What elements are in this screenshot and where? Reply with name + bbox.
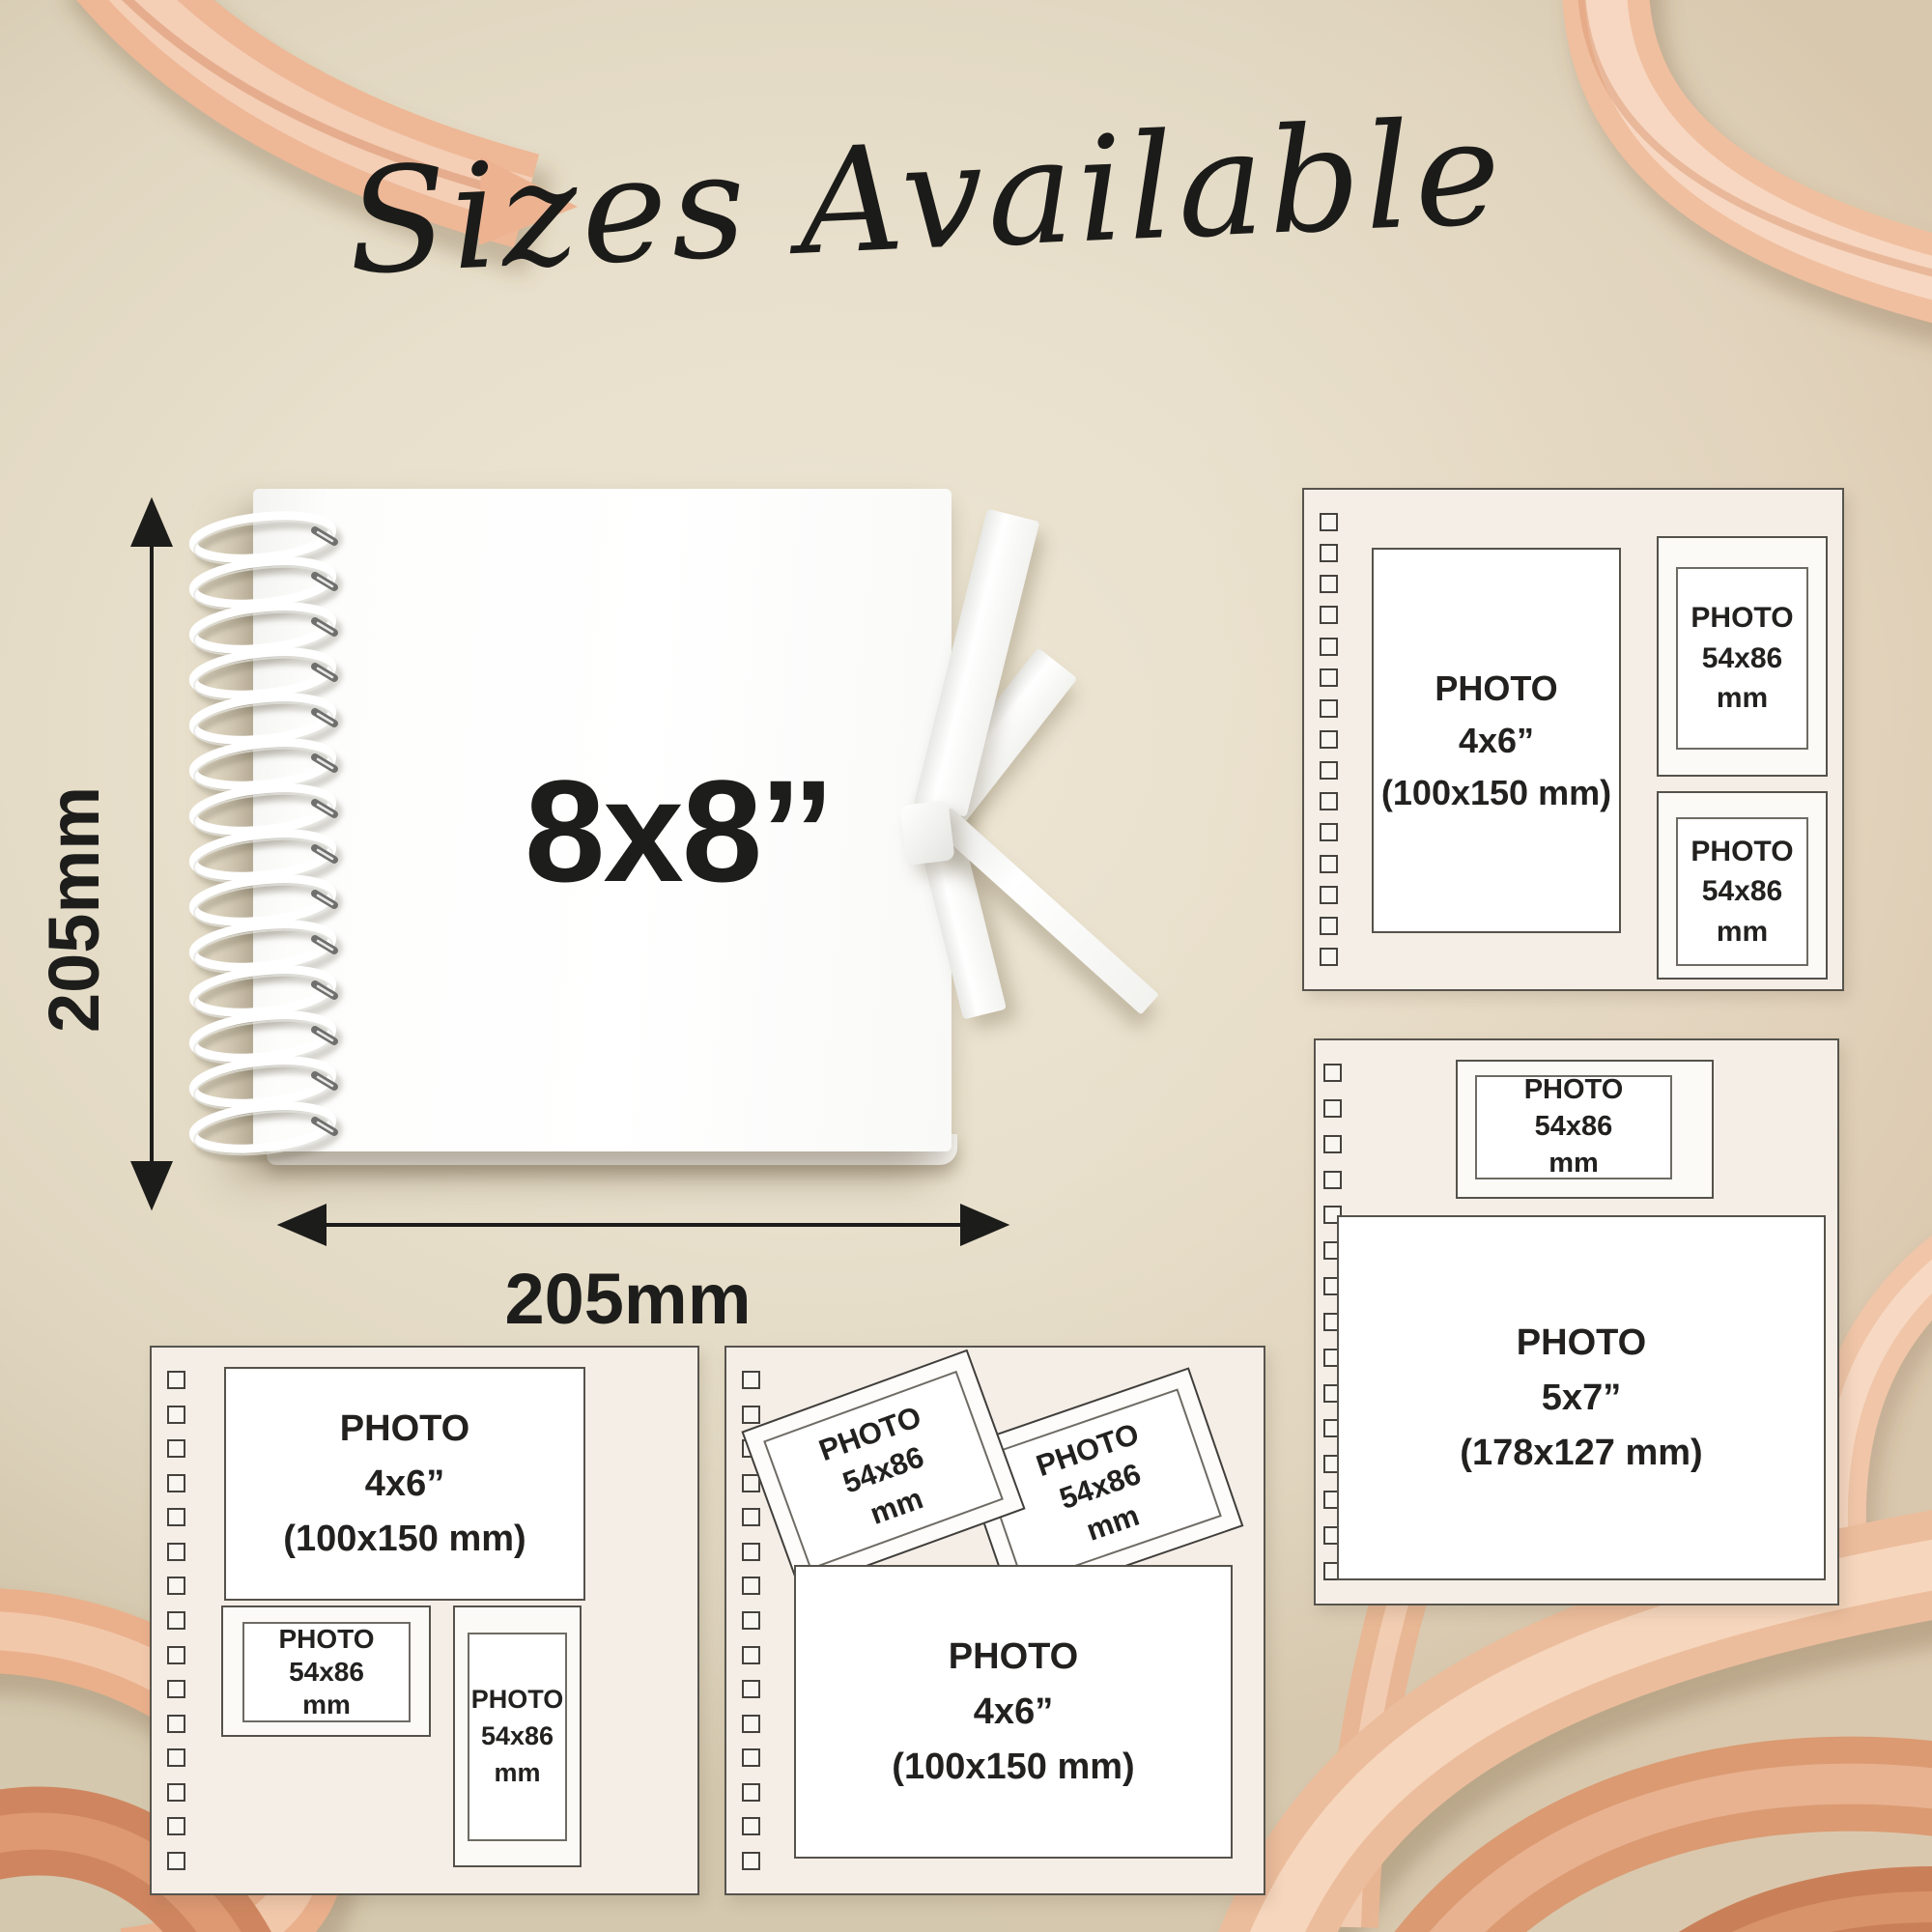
photo-slot-4x6-landscape: PHOTO 4x6” (100x150 mm)	[224, 1367, 585, 1601]
punch-holes	[167, 1371, 186, 1870]
card-pocket: PHOTO 54x86 mm	[1657, 536, 1828, 777]
punch-hole	[742, 1371, 760, 1389]
punch-hole	[167, 1852, 185, 1870]
photo-slot-5x7: PHOTO 5x7” (178x127 mm)	[1337, 1215, 1826, 1580]
punch-hole	[742, 1406, 760, 1424]
layout-page-bottom-left: PHOTO 4x6” (100x150 mm) PHOTO 54x86 mm P…	[150, 1346, 699, 1895]
punch-hole	[167, 1508, 185, 1526]
height-dimension-label: 205mm	[33, 801, 112, 1033]
punch-hole	[1320, 699, 1338, 718]
card-pocket: PHOTO 54x86 mm	[1657, 791, 1828, 980]
photo-slot-54x86: PHOTO 54x86 mm	[1475, 1075, 1672, 1179]
punch-hole	[1320, 730, 1338, 749]
layout-page-top-right: PHOTO 4x6” (100x150 mm) PHOTO 54x86 mm P…	[1302, 488, 1844, 991]
punch-hole	[742, 1611, 760, 1630]
punch-hole	[167, 1783, 185, 1802]
punch-holes	[1320, 513, 1339, 966]
punch-hole	[742, 1783, 760, 1802]
punch-hole	[1320, 855, 1338, 873]
punch-hole	[1320, 606, 1338, 624]
punch-hole	[167, 1611, 185, 1630]
punch-hole	[1320, 948, 1338, 966]
punch-hole	[1323, 1171, 1342, 1189]
photo-slot-54x86: PHOTO 54x86 mm	[468, 1633, 567, 1841]
punch-hole	[1323, 1064, 1342, 1082]
photo-slot-4x6-landscape: PHOTO 4x6” (100x150 mm)	[794, 1565, 1233, 1859]
punch-hole	[1320, 917, 1338, 935]
punch-hole	[742, 1817, 760, 1835]
punch-hole	[742, 1543, 760, 1561]
punch-hole	[742, 1715, 760, 1733]
infographic-canvas: { "title": "Sizes Available", "book": { …	[0, 0, 1932, 1932]
layout-page-middle-right: PHOTO 54x86 mm PHOTO 5x7” (178x127 mm)	[1314, 1038, 1839, 1605]
punch-hole	[1320, 668, 1338, 687]
punch-hole	[742, 1646, 760, 1664]
punch-hole	[1320, 886, 1338, 904]
punch-hole	[167, 1715, 185, 1733]
card-pocket: PHOTO 54x86 mm	[1456, 1060, 1714, 1199]
punch-hole	[1320, 638, 1338, 656]
punch-hole	[167, 1577, 185, 1595]
punch-hole	[167, 1748, 185, 1767]
punch-hole	[167, 1646, 185, 1664]
layout-page-bottom-middle: PHOTO 54x86 mm PHOTO 54x86 mm PHOTO 4x6”…	[724, 1346, 1265, 1895]
punch-hole	[167, 1371, 185, 1389]
punch-hole	[1320, 823, 1338, 841]
punch-hole	[1320, 761, 1338, 780]
punch-hole	[1320, 792, 1338, 810]
punch-hole	[1320, 575, 1338, 593]
punch-hole	[1320, 544, 1338, 562]
photo-slot-54x86: PHOTO 54x86 mm	[763, 1371, 1004, 1570]
card-pocket: PHOTO 54x86 mm	[221, 1605, 431, 1737]
punch-hole	[167, 1474, 185, 1492]
punch-hole	[742, 1748, 760, 1767]
punch-hole	[167, 1439, 185, 1458]
tilted-card-pocket: PHOTO 54x86 mm	[741, 1350, 1025, 1592]
photo-slot-54x86: PHOTO 54x86 mm	[1676, 817, 1808, 966]
photo-slot-4x6-portrait: PHOTO 4x6” (100x150 mm)	[1372, 548, 1621, 933]
punch-hole	[167, 1406, 185, 1424]
punch-hole	[167, 1817, 185, 1835]
punch-hole	[1320, 513, 1338, 531]
width-dimension-label: 205mm	[377, 1258, 879, 1340]
punch-hole	[167, 1543, 185, 1561]
punch-hole	[742, 1508, 760, 1526]
punch-hole	[1323, 1135, 1342, 1153]
punch-hole	[742, 1852, 760, 1870]
punch-hole	[167, 1680, 185, 1698]
punch-hole	[1323, 1099, 1342, 1118]
photo-slot-54x86: PHOTO 54x86 mm	[242, 1622, 411, 1722]
punch-hole	[742, 1577, 760, 1595]
punch-hole	[742, 1680, 760, 1698]
photo-slot-54x86: PHOTO 54x86 mm	[1676, 567, 1808, 750]
card-pocket: PHOTO 54x86 mm	[453, 1605, 582, 1867]
